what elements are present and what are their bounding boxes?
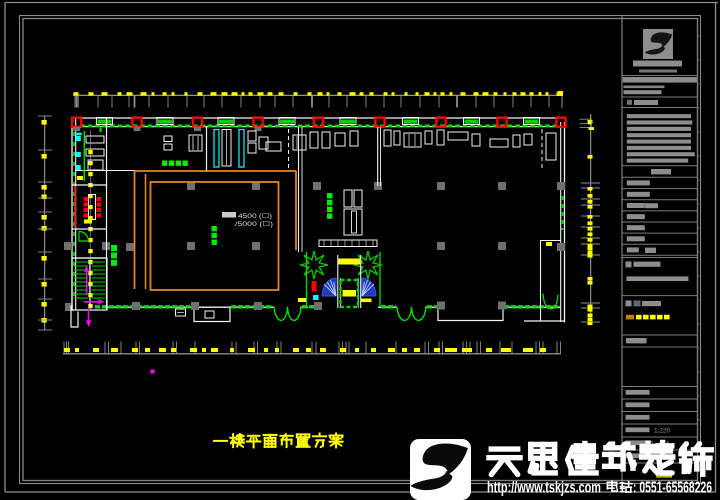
svg-text:http://www.tskjzs.com: http://www.tskjzs.com: [487, 480, 601, 497]
svg-text:4500 (☐): 4500 (☐): [238, 212, 272, 220]
svg-text:/5000 (☐): /5000 (☐): [235, 220, 273, 228]
svg-text:1:220: 1:220: [654, 428, 670, 435]
svg-text:: 0551-65568226: : 0551-65568226: [633, 480, 712, 497]
